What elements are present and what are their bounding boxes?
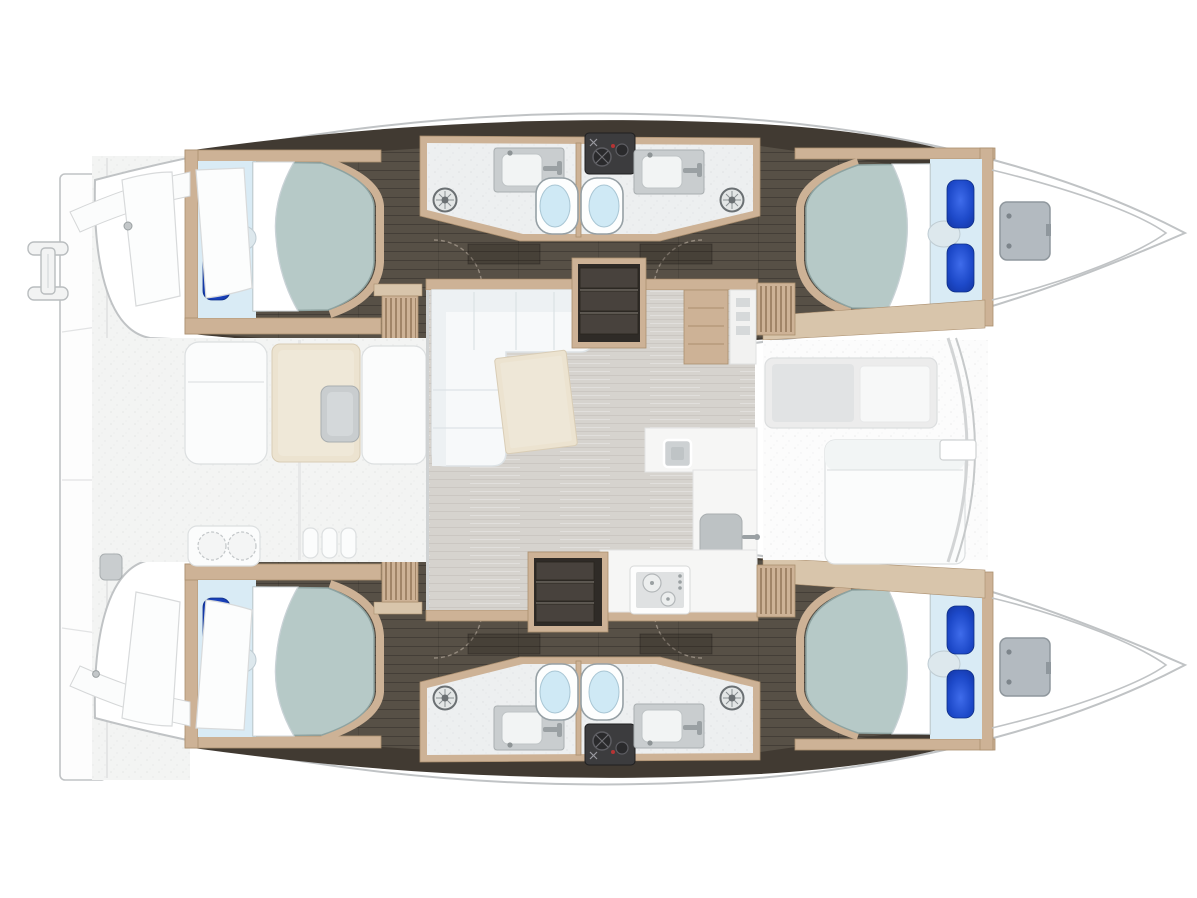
deck-fitting-icon [93,671,100,678]
helm-console [196,600,252,730]
deck-hatch [100,554,122,580]
nav-station [684,290,756,364]
louver-vent-locker [757,283,795,335]
burner-icon [198,532,226,560]
salon-door-wall [426,290,429,610]
companionway-steps-starboard [528,552,608,632]
deck-fitting-icon [124,222,132,230]
louver-vent-locker [757,565,795,617]
recessed-seat [765,358,937,428]
sofa-back-cushion [432,290,592,312]
forward-cockpit [763,338,988,564]
gas-stove [630,566,690,614]
catamaran-floorplan-image: Catamaran yacht floor plan — top-down vi… [0,0,1197,898]
coffee-table [494,350,577,454]
cockpit-bench [362,346,426,464]
salon [426,258,795,632]
cockpit-grill-module [188,526,260,566]
galley-counter [645,428,757,472]
deck-hatch [321,386,359,442]
helm-console [196,168,252,298]
burner-icon [228,532,256,560]
galley-square-sink [664,440,691,467]
companionway-steps-port [572,258,646,348]
faucet-icon [742,535,756,539]
step-fins [303,528,356,558]
cockpit-bench [185,342,267,464]
sofa-back-cushion [432,290,446,466]
mast-step [940,440,976,460]
